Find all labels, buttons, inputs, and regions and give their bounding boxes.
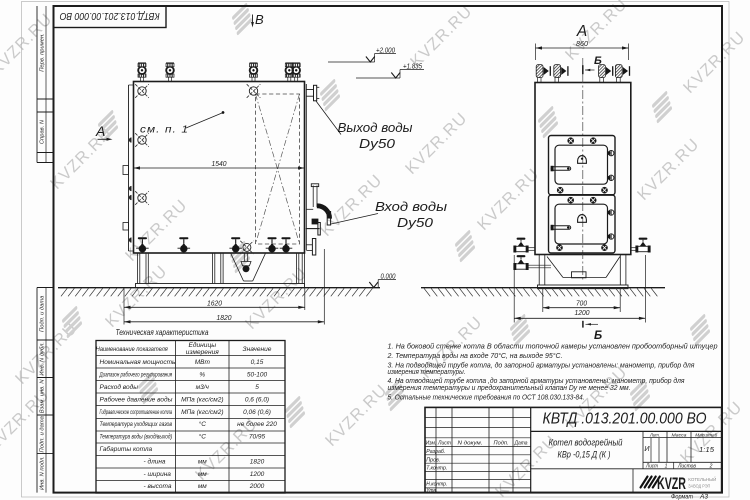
svg-text:Подп. и дата: Подп. и дата xyxy=(40,295,46,332)
svg-text:70/95: 70/95 xyxy=(249,434,266,441)
svg-text:Температура воды (вход/выход): Температура воды (вход/выход) xyxy=(100,433,173,441)
svg-text:Значение: Значение xyxy=(243,346,272,353)
svg-text:не более 220: не более 220 xyxy=(237,420,277,428)
svg-text:см. п. 1: см. п. 1 xyxy=(140,124,189,136)
svg-text:Рабочее давление воды: Рабочее давление воды xyxy=(100,395,173,403)
svg-text:измерения: измерения xyxy=(186,349,219,356)
svg-text:0,06 (0,6): 0,06 (0,6) xyxy=(243,409,271,416)
svg-text:МПа (кгс/см2): МПа (кгс/см2) xyxy=(181,409,223,416)
svg-text:KVZR: KVZR xyxy=(657,474,686,493)
svg-text:Т.контр.: Т.контр. xyxy=(426,466,447,472)
svg-text:Б: Б xyxy=(594,55,602,67)
svg-text:Справ. N: Справ. N xyxy=(40,119,46,144)
svg-text:5. Остальные технические треб: 5. Остальные технические требования по О… xyxy=(388,392,585,401)
svg-text:°С: °С xyxy=(199,433,207,441)
svg-text:Перв. примен.: Перв. примен. xyxy=(40,33,46,72)
svg-text:КОТЕЛЬНЫЙ: КОТЕЛЬНЫЙ xyxy=(688,475,716,482)
svg-text:860: 860 xyxy=(576,39,588,48)
svg-text:2. Температура воды на входе: 2. Температура воды на входе 70°С, на вы… xyxy=(387,351,563,360)
svg-text:1200: 1200 xyxy=(575,308,590,317)
svg-text:Утв.: Утв. xyxy=(425,488,437,494)
svg-text:- высота: - высота xyxy=(144,483,172,490)
svg-text:Гидравлическое сопротивление к: Гидравлическое сопротивление котла xyxy=(100,408,173,416)
svg-text:мм: мм xyxy=(198,458,207,465)
svg-text:Номинальная мощность: Номинальная мощность xyxy=(100,359,177,366)
svg-text:1. На боковой стенке котла В: 1. На боковой стенке котла В области топ… xyxy=(388,342,718,351)
svg-text:°С: °С xyxy=(199,420,207,428)
svg-text:Вход воды: Вход воды xyxy=(375,200,447,214)
svg-text:Н.контр.: Н.контр. xyxy=(426,482,447,488)
svg-text:м3/ч: м3/ч xyxy=(196,384,210,391)
svg-text:Dy50: Dy50 xyxy=(359,137,395,151)
svg-text:2000: 2000 xyxy=(249,483,265,490)
svg-text:Изм.: Изм. xyxy=(426,441,437,447)
svg-text:Разраб.: Разраб. xyxy=(426,449,445,455)
svg-text:мм: мм xyxy=(198,483,207,490)
svg-text:Выход воды: Выход воды xyxy=(338,121,413,135)
svg-text:0.000: 0.000 xyxy=(381,271,396,280)
svg-text:Подп.: Подп. xyxy=(494,441,509,447)
svg-text:Б: Б xyxy=(594,330,602,342)
svg-text:Дата: Дата xyxy=(514,441,528,447)
svg-text:Dy50: Dy50 xyxy=(397,216,433,230)
svg-text:Наименование показателя: Наименование показателя xyxy=(96,346,168,353)
svg-text:Формат: Формат xyxy=(671,493,693,500)
svg-text:N докум.: N докум. xyxy=(458,441,483,447)
svg-text:0,15: 0,15 xyxy=(251,359,264,366)
svg-text:- ширина: - ширина xyxy=(144,471,172,478)
svg-text:Пров.: Пров. xyxy=(426,457,440,463)
svg-text:Техническая характеристика: Техническая характеристика xyxy=(116,328,210,337)
svg-text:КВр -0,15 Д (К ): КВр -0,15 Д (К ) xyxy=(558,450,611,460)
svg-text:измерения температуры.: измерения температуры. xyxy=(388,367,466,376)
svg-text:Котел водогрейный: Котел водогрейный xyxy=(549,438,624,449)
svg-text:А: А xyxy=(95,123,105,139)
svg-text:1620: 1620 xyxy=(207,299,222,308)
svg-text:И: И xyxy=(644,444,650,453)
svg-text:Габариты котла: Габариты котла xyxy=(100,445,153,453)
svg-text:Инв. N дубл.: Инв. N дубл. xyxy=(40,342,46,376)
svg-text:1820: 1820 xyxy=(250,458,265,465)
svg-text:МПа (кгс/см2): МПа (кгс/см2) xyxy=(181,396,223,403)
svg-text:%: % xyxy=(199,372,205,379)
svg-text:1:15: 1:15 xyxy=(699,445,715,454)
svg-text:Диапазон рабочего регулировани: Диапазон рабочего регулирования xyxy=(99,371,173,379)
svg-text:1820: 1820 xyxy=(217,313,232,322)
svg-text:1200: 1200 xyxy=(250,471,265,478)
svg-text:700: 700 xyxy=(576,299,587,308)
svg-text:КВТД.013.201.00.000 ВО: КВТД.013.201.00.000 ВО xyxy=(60,10,160,21)
svg-text:КВТД .013.201.00.000 ВО: КВТД .013.201.00.000 ВО xyxy=(543,411,707,428)
svg-text:Инв. N подл.: Инв. N подл. xyxy=(40,456,46,490)
svg-text:мм: мм xyxy=(198,471,207,478)
svg-text:А: А xyxy=(576,23,587,40)
svg-text:В: В xyxy=(255,12,264,27)
svg-text:Единицы: Единицы xyxy=(188,341,216,349)
svg-text:1540: 1540 xyxy=(212,159,227,168)
svg-text:МВт: МВт xyxy=(195,359,211,366)
svg-text:Масса: Масса xyxy=(672,433,687,439)
svg-text:Масштаб: Масштаб xyxy=(695,433,717,439)
svg-text:ЗАВОД РЭП: ЗАВОД РЭП xyxy=(688,484,710,489)
svg-text:+1.835: +1.835 xyxy=(403,61,423,70)
svg-text:0,6 (6,0): 0,6 (6,0) xyxy=(245,396,269,403)
svg-text:измерения температуры и предох: измерения температуры и предохранительны… xyxy=(388,383,631,392)
svg-text:- длина: - длина xyxy=(144,457,166,465)
svg-text:Подп. и дата: Подп. и дата xyxy=(40,415,46,452)
svg-text:5: 5 xyxy=(255,384,259,391)
svg-text:Температура уходящих газов: Температура уходящих газов xyxy=(100,420,173,428)
svg-text:+2.000: +2.000 xyxy=(376,45,395,54)
svg-text:А3: А3 xyxy=(699,493,708,500)
svg-text:Расход воды: Расход воды xyxy=(100,383,139,391)
svg-text:Лист: Лист xyxy=(437,441,451,447)
svg-text:50-100: 50-100 xyxy=(247,372,268,379)
svg-text:Взам. инв. N: Взам. инв. N xyxy=(40,379,46,414)
